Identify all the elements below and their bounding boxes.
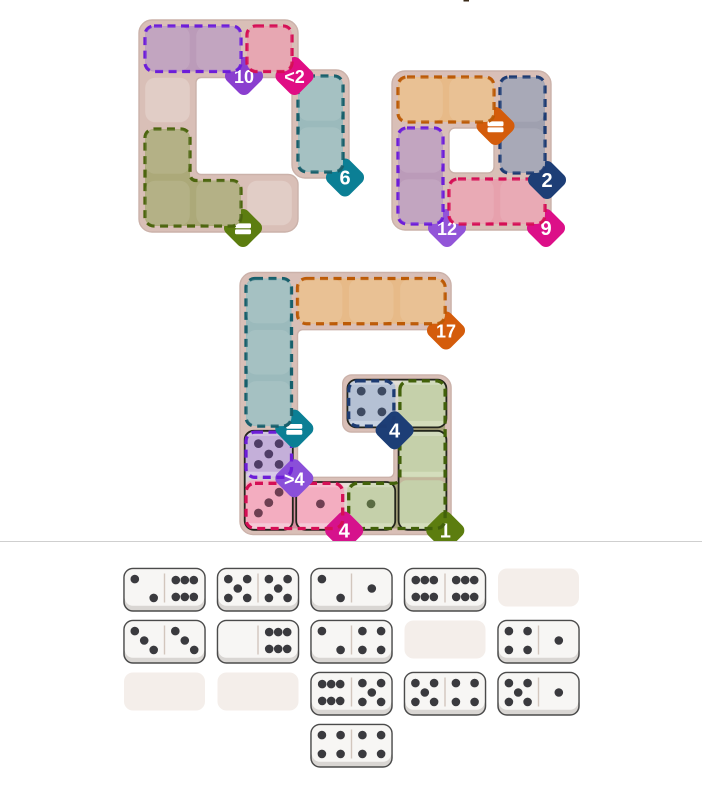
svg-text:4: 4 [389, 420, 401, 442]
svg-text:>4: >4 [284, 469, 305, 489]
svg-text:1: 1 [440, 521, 451, 543]
svg-text:2: 2 [541, 170, 552, 192]
